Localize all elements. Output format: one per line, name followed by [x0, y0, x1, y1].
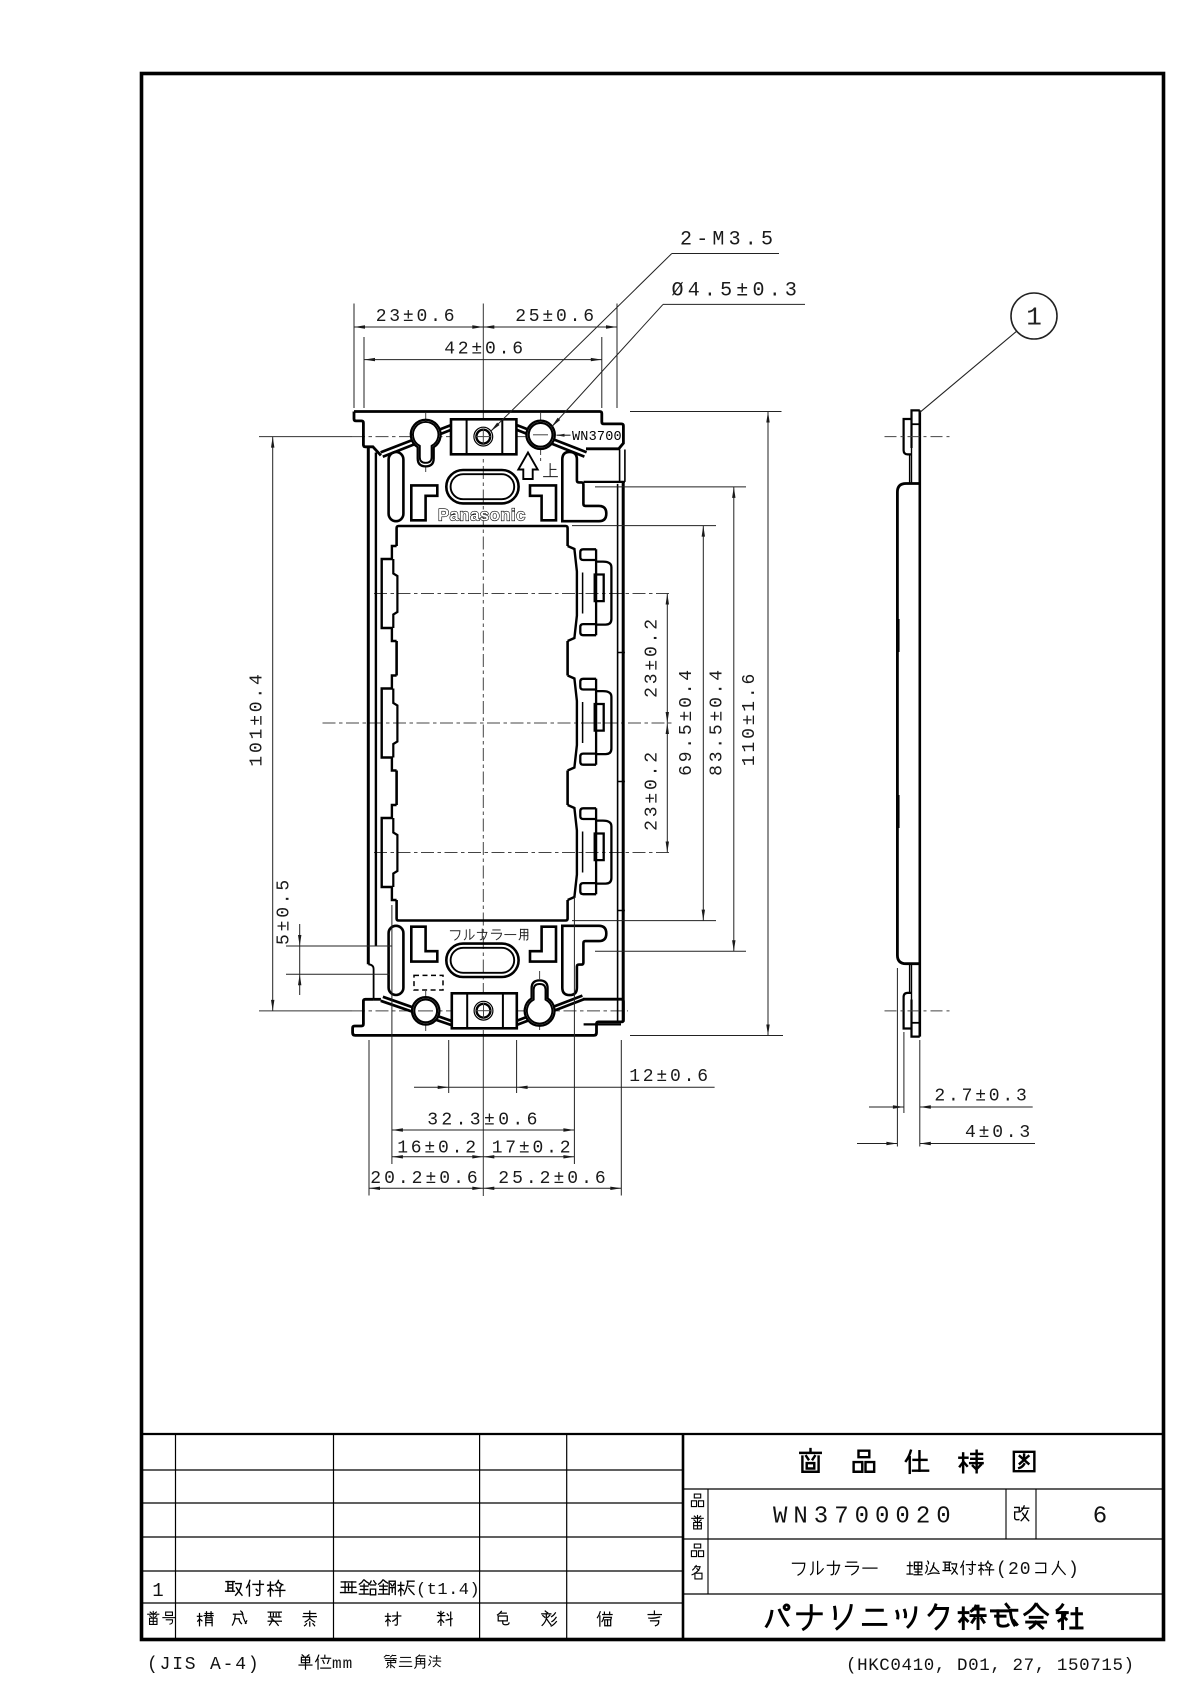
svg-text:25±0.6: 25±0.6 — [515, 307, 597, 327]
svg-text:4±0.3: 4±0.3 — [965, 1123, 1033, 1143]
svg-text:(HKC0410, D01, 27, 150715): (HKC0410, D01, 27, 150715) — [846, 1656, 1135, 1676]
svg-text:6: 6 — [1093, 1504, 1107, 1531]
svg-text:WN3700020: WN3700020 — [773, 1504, 957, 1531]
svg-text:2.7±0.3: 2.7±0.3 — [934, 1087, 1029, 1107]
svg-text:16±0.2: 16±0.2 — [397, 1138, 479, 1158]
svg-text:110±1.6: 110±1.6 — [740, 671, 760, 766]
svg-text:): ) — [1068, 1560, 1079, 1580]
svg-text:32.3±0.6: 32.3±0.6 — [427, 1111, 541, 1131]
svg-text:20: 20 — [1008, 1560, 1032, 1580]
svg-text:69.5±0.4: 69.5±0.4 — [677, 667, 697, 776]
svg-text:101±0.4: 101±0.4 — [248, 671, 268, 766]
svg-text:12±0.6: 12±0.6 — [629, 1067, 711, 1087]
svg-text:Ø4.5±0.3: Ø4.5±0.3 — [672, 280, 802, 303]
svg-text:1: 1 — [152, 1580, 163, 1602]
svg-text:(JIS A-4): (JIS A-4) — [147, 1655, 260, 1675]
svg-text:mm: mm — [332, 1655, 353, 1673]
svg-text:23±0.6: 23±0.6 — [376, 307, 458, 327]
svg-text:25.2±0.6: 25.2±0.6 — [498, 1169, 608, 1189]
svg-text:83.5±0.4: 83.5±0.4 — [708, 667, 728, 776]
svg-text:5±0.5: 5±0.5 — [275, 877, 295, 945]
svg-text:2-M3.5: 2-M3.5 — [680, 229, 777, 252]
svg-text:(: ( — [996, 1560, 1007, 1580]
svg-text:23±0.2: 23±0.2 — [643, 749, 663, 831]
svg-text:20.2±0.6: 20.2±0.6 — [370, 1169, 480, 1189]
svg-text:23±0.2: 23±0.2 — [643, 616, 663, 698]
svg-text:Panasonic: Panasonic — [438, 507, 526, 525]
svg-text:42±0.6: 42±0.6 — [444, 340, 526, 360]
svg-text:1: 1 — [1026, 303, 1042, 333]
svg-text:WN3700: WN3700 — [572, 430, 622, 445]
svg-text:17±0.2: 17±0.2 — [492, 1138, 574, 1158]
svg-text:(t1.4): (t1.4) — [416, 1581, 480, 1600]
